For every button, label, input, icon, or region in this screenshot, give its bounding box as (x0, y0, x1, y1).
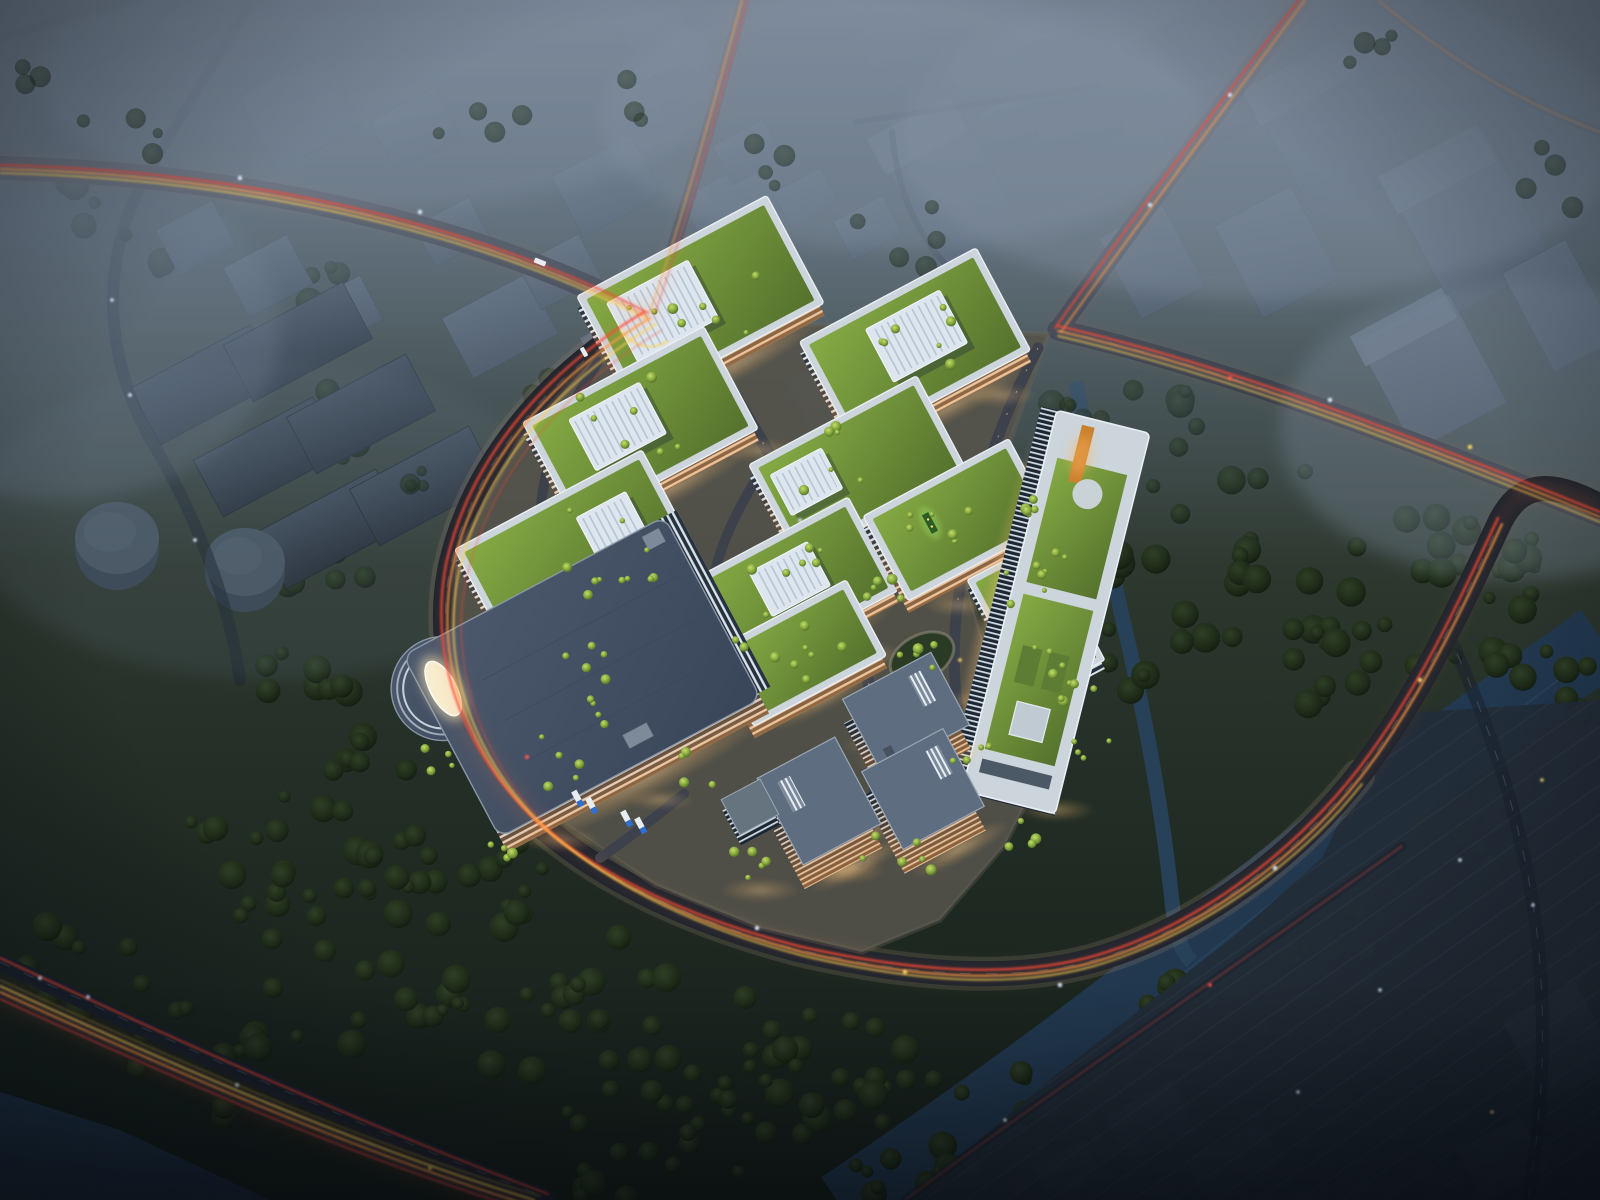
aerial-rendering: Dusk aerial rendering of an illuminated … (0, 0, 1600, 1200)
bottom-darkening (0, 980, 1600, 1200)
rendering-viewport: Dusk aerial rendering of an illuminated … (0, 0, 1600, 1200)
